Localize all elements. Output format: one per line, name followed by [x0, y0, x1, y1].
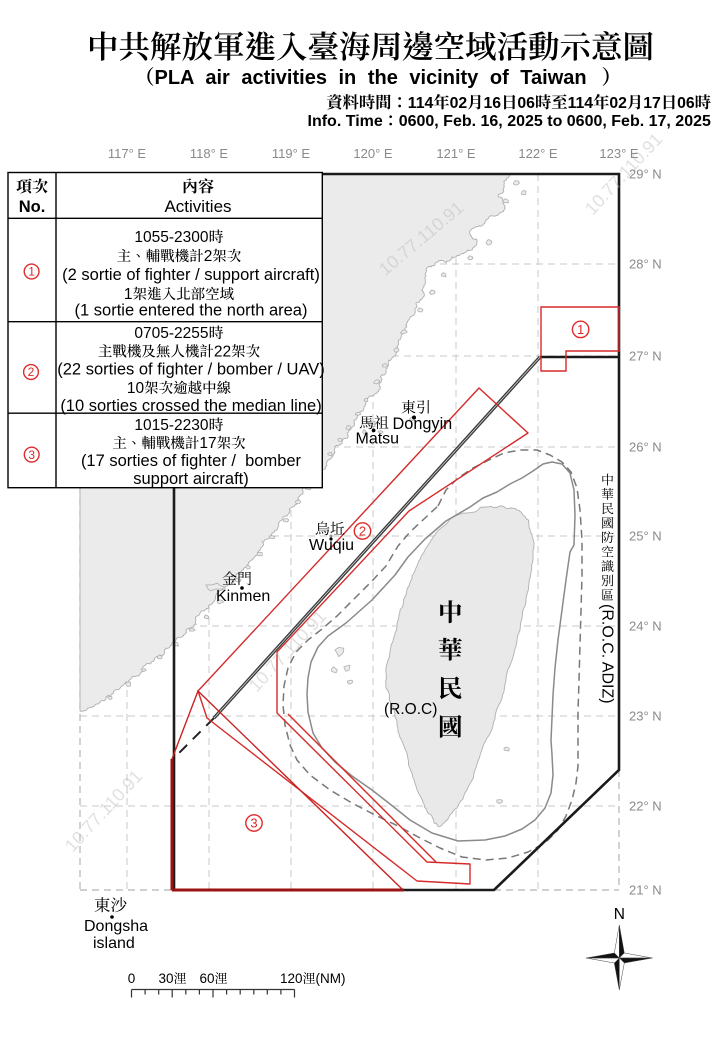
svg-text:(10 sorties crossed the median: (10 sorties crossed the median line) [60, 397, 321, 415]
svg-text:16: 16 [484, 95, 502, 112]
svg-text:118° E: 118° E [190, 146, 229, 161]
svg-text:27° N: 27° N [629, 349, 662, 364]
svg-text:22° N: 22° N [629, 799, 662, 814]
svg-text:1: 1 [577, 322, 584, 337]
svg-text:22: 22 [214, 343, 231, 360]
svg-text:25° N: 25° N [629, 529, 662, 544]
svg-text:114: 114 [408, 95, 434, 112]
svg-text:Wuqiu: Wuqiu [309, 537, 354, 554]
svg-text:10: 10 [127, 380, 145, 397]
svg-text:PLA air activities in the vici: PLA air activities in the vicinity of Ta… [155, 67, 587, 89]
svg-text:60: 60 [200, 971, 215, 986]
svg-text:26° N: 26° N [629, 440, 662, 455]
svg-text:24° N: 24° N [629, 619, 662, 634]
svg-text:(NM): (NM) [316, 971, 346, 986]
svg-text:(1 sortie entered the north ar: (1 sortie entered the north area) [75, 302, 308, 320]
svg-text:No.: No. [19, 198, 46, 216]
svg-text:2: 2 [359, 524, 366, 539]
svg-text:0: 0 [128, 971, 136, 986]
svg-text:Activities: Activities [164, 197, 231, 216]
svg-text:(R.O.C): (R.O.C) [384, 701, 437, 718]
svg-text:120: 120 [280, 971, 303, 986]
svg-text:23° N: 23° N [629, 709, 662, 724]
svg-text:120° E: 120° E [353, 146, 393, 161]
svg-text:121° E: 121° E [436, 146, 476, 161]
svg-text:(22 sorties of fighter / bombe: (22 sorties of fighter / bomber / UAV) [57, 361, 324, 379]
svg-text:3: 3 [28, 448, 35, 462]
svg-text:21° N: 21° N [629, 883, 662, 898]
svg-text:2: 2 [204, 248, 213, 265]
svg-text:(R.O.C. ADIZ): (R.O.C. ADIZ) [599, 604, 616, 704]
svg-text:(17 sorties of fighter / bomb: (17 sorties of fighter / bomber [81, 452, 302, 470]
svg-text:119° E: 119° E [272, 146, 311, 161]
svg-text:0705-2255: 0705-2255 [134, 325, 208, 342]
svg-text:114: 114 [568, 95, 594, 112]
svg-text:02: 02 [450, 95, 468, 112]
svg-text:28° N: 28° N [629, 257, 662, 272]
svg-text:17: 17 [199, 435, 216, 452]
svg-text:Kinmen: Kinmen [216, 588, 270, 605]
svg-text:1015-2230: 1015-2230 [134, 417, 209, 434]
svg-text:N: N [614, 906, 625, 923]
svg-text:Info. Time: Info. Time [308, 113, 383, 130]
svg-text:06: 06 [677, 95, 695, 112]
svg-text:1: 1 [124, 286, 133, 303]
svg-text:Dongyin: Dongyin [393, 415, 453, 433]
svg-text:29° N: 29° N [629, 167, 662, 182]
svg-text:1: 1 [28, 265, 35, 279]
svg-text:02: 02 [609, 95, 627, 112]
svg-text:Dongsha: Dongsha [84, 918, 148, 935]
svg-text:Matsu: Matsu [356, 431, 400, 448]
svg-text:(2 sortie of fighter / support: (2 sortie of fighter / support aircraft) [62, 266, 320, 284]
svg-text:30: 30 [159, 971, 174, 986]
svg-text:0600, Feb. 16, 2025 to 0600, F: 0600, Feb. 16, 2025 to 0600, Feb. 17, 20… [399, 113, 711, 130]
svg-text:1055-2300: 1055-2300 [134, 229, 209, 246]
svg-text:island: island [93, 935, 135, 952]
svg-text:06: 06 [517, 95, 535, 112]
svg-text:122° E: 122° E [518, 146, 558, 161]
svg-text:123° E: 123° E [599, 146, 639, 161]
svg-text:17: 17 [643, 95, 661, 112]
svg-text:3: 3 [250, 816, 257, 831]
svg-text:support aircraft): support aircraft) [133, 470, 249, 488]
svg-text:117° E: 117° E [108, 146, 147, 161]
svg-text:2: 2 [28, 365, 35, 379]
